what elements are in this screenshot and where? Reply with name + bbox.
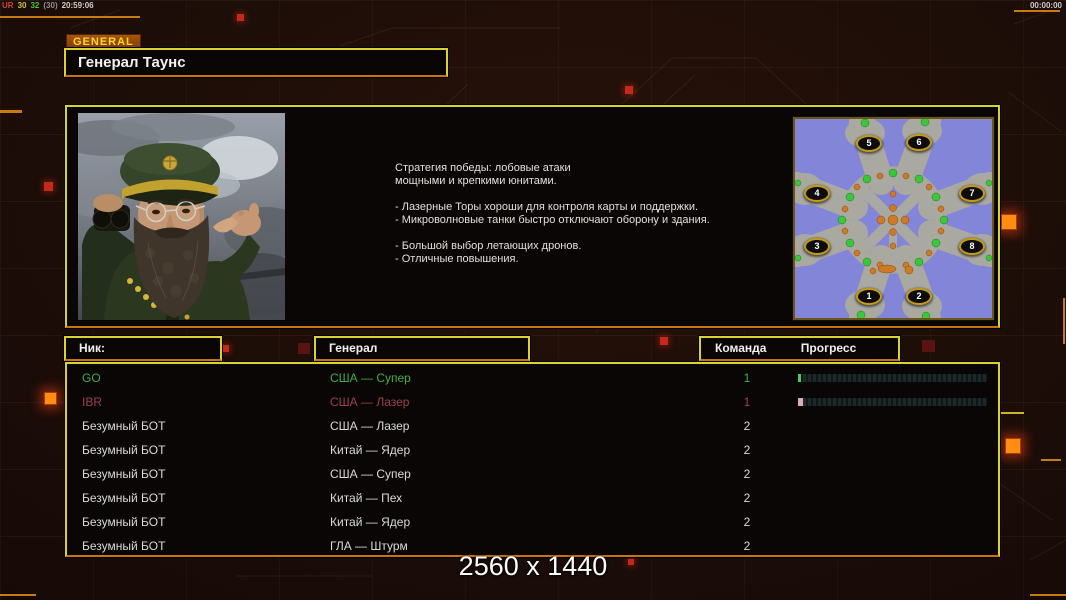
minimap-start-position-7: 7	[959, 185, 985, 202]
player-team: 2	[732, 515, 762, 529]
player-roster: GO США — Супер 1 IBR США — Лазер 1 Безум…	[65, 362, 1000, 557]
general-portrait	[78, 113, 285, 320]
player-general: США — Лазер	[330, 419, 732, 433]
debug-readout: UR3032(30)20:59:06	[2, 1, 98, 10]
match-timer: 00:00:00	[1030, 1, 1062, 10]
general-name: Генерал Таунс	[78, 54, 186, 71]
player-nick: Безумный БОТ	[82, 419, 330, 433]
player-nick: Безумный БОТ	[82, 491, 330, 505]
column-header-general: Генерал	[314, 336, 530, 361]
player-team: 1	[732, 395, 762, 409]
roster-rows: GO США — Супер 1 IBR США — Лазер 1 Безум…	[67, 366, 998, 558]
column-header-team: Команда	[715, 338, 766, 359]
player-general: США — Лазер	[330, 395, 732, 409]
accent-line	[0, 16, 140, 18]
roster-row: Безумный БОТ США — Супер 2	[67, 462, 998, 486]
player-general: Китай — Ядер	[330, 443, 732, 457]
minimap-start-position-6: 6	[906, 134, 932, 151]
player-team: 1	[732, 371, 762, 385]
minimap-start-position-4: 4	[804, 185, 830, 202]
minimap-start-position-2: 2	[906, 288, 932, 305]
minimap-start-position-3: 3	[804, 238, 830, 255]
player-team: 2	[732, 419, 762, 433]
player-general: Китай — Пех	[330, 491, 732, 505]
general-info-panel: Стратегия победы: лобовые атаки мощными …	[65, 105, 1000, 328]
player-team: 2	[732, 467, 762, 481]
minimap: 12345678	[793, 117, 994, 320]
accent-square	[298, 343, 310, 354]
accent-line	[1014, 10, 1060, 12]
player-nick: Безумный БОТ	[82, 443, 330, 457]
minimap-start-position-1: 1	[856, 288, 882, 305]
accent-square	[222, 345, 229, 352]
accent-line	[1063, 298, 1065, 344]
resolution-watermark: 2560 x 1440	[0, 551, 1066, 582]
accent-square	[44, 392, 57, 405]
player-team: 2	[732, 443, 762, 457]
accent-line	[1041, 459, 1061, 461]
roster-row: Безумный БОТ Китай — Ядер 2	[67, 510, 998, 534]
accent-line	[0, 594, 36, 596]
player-team: 2	[732, 491, 762, 505]
minimap-start-position-5: 5	[856, 135, 882, 152]
accent-line	[1030, 594, 1066, 596]
minimap-terrain	[795, 119, 992, 318]
accent-square	[237, 14, 244, 21]
player-general: Китай — Ядер	[330, 515, 732, 529]
player-progress	[797, 397, 988, 407]
player-nick: IBR	[82, 395, 330, 409]
column-header-nick: Ник:	[64, 336, 222, 361]
roster-row: GO США — Супер 1	[67, 366, 998, 390]
player-general: США — Супер	[330, 467, 732, 481]
accent-square	[660, 337, 668, 345]
player-progress	[797, 373, 988, 383]
accent-square	[44, 182, 53, 191]
accent-square	[625, 86, 633, 94]
accent-line	[0, 110, 22, 113]
minimap-start-position-8: 8	[959, 238, 985, 255]
accent-square	[1001, 214, 1017, 230]
player-nick: Безумный БОТ	[82, 467, 330, 481]
roster-row: Безумный БОТ Китай — Ядер 2	[67, 438, 998, 462]
player-nick: GO	[82, 371, 330, 385]
accent-square	[1005, 438, 1021, 454]
loading-screen: UR3032(30)20:59:06 00:00:00 GENERAL Гене…	[0, 0, 1066, 600]
briefing-text: Стратегия победы: лобовые атаки мощными …	[395, 162, 745, 266]
roster-row: Безумный БОТ США — Лазер 2	[67, 414, 998, 438]
column-header-progress: Прогресс	[801, 338, 856, 359]
accent-square	[922, 340, 935, 352]
column-header-team-progress: Команда Прогресс	[699, 336, 900, 361]
accent-line	[1000, 412, 1024, 414]
selected-general-title: Генерал Таунс	[64, 48, 448, 77]
roster-row: Безумный БОТ Китай — Пех 2	[67, 486, 998, 510]
roster-row: IBR США — Лазер 1	[67, 390, 998, 414]
player-nick: Безумный БОТ	[82, 515, 330, 529]
player-general: США — Супер	[330, 371, 732, 385]
